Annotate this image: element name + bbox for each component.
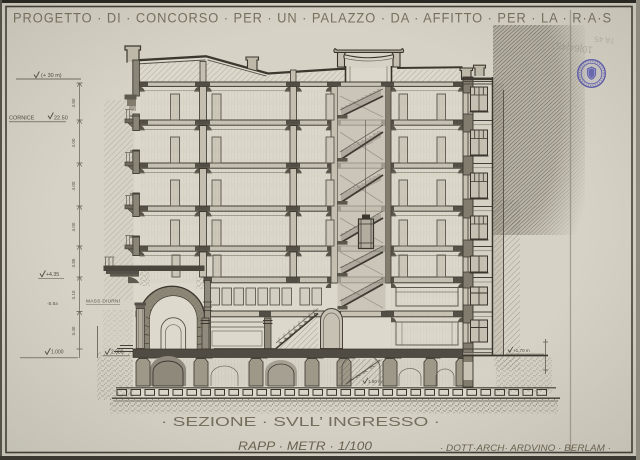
svg-text:3.10: 3.10 [71,290,76,299]
svg-text:4.80: 4.80 [71,98,76,107]
svg-text:+1.70 m: +1.70 m [513,348,530,353]
svg-text:22.50: 22.50 [54,116,68,122]
svg-text:·B.Ba: ·B.Ba [47,301,59,306]
svg-text:(+ 30 m): (+ 30 m) [41,73,62,79]
svg-text:CORNICE: CORNICE [9,116,35,122]
svg-text:4.00: 4.00 [71,222,76,231]
svg-text:RAPP · METR · 1/100: RAPP · METR · 1/100 [238,441,373,453]
svg-text:4.00: 4.00 [71,181,76,190]
svg-text:1.000: 1.000 [51,350,64,356]
svg-text:2.000: 2.000 [111,350,124,356]
svg-text:MASS·DIURNI: MASS·DIURNI [86,299,120,305]
svg-text:+4.35: +4.35 [46,272,59,278]
svg-text:7A 45: 7A 45 [593,34,615,45]
svg-text:3.40: 3.40 [71,326,76,335]
svg-text:3.85: 3.85 [71,258,76,267]
svg-text:PROGETTO · DI · CONCORSO · PER: PROGETTO · DI · CONCORSO · PER · UN · PA… [13,11,612,26]
svg-text:· SEZIONE · SVLL’ INGRESSO ·: · SEZIONE · SVLL’ INGRESSO · [161,415,440,429]
svg-text:1.50 m: 1.50 m [368,379,382,384]
svg-text:· DOTT·ARCH· ARDVINO · BERLAM: · DOTT·ARCH· ARDVINO · BERLAM · [440,443,611,454]
svg-text:4.00: 4.00 [71,138,76,147]
